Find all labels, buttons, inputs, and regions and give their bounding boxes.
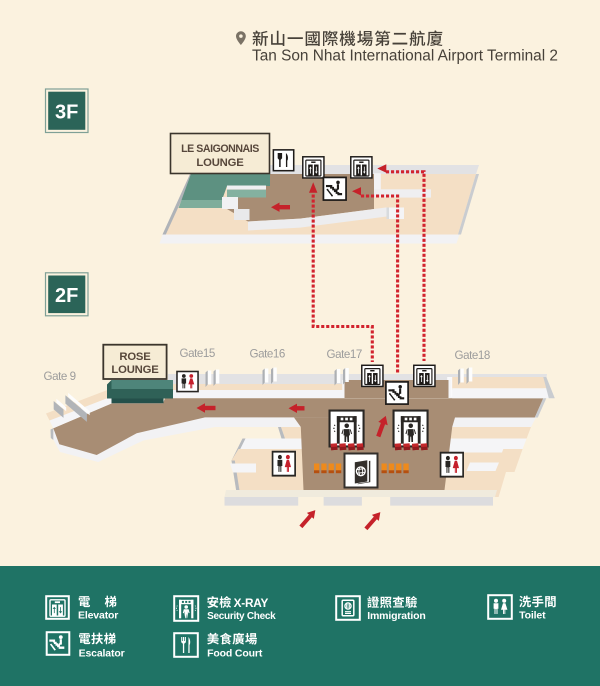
svg-text:Food Court: Food Court [207, 648, 263, 660]
svg-text:X-RAY: X-RAY [234, 596, 269, 610]
svg-text:Gate17: Gate17 [327, 348, 362, 361]
svg-text:LE SAIGONNAIS: LE SAIGONNAIS [181, 143, 259, 155]
svg-text:2F: 2F [55, 285, 78, 307]
svg-text:LOUNGE: LOUNGE [111, 364, 159, 376]
svg-text:Escalator: Escalator [79, 647, 125, 659]
svg-text:Tan Son Nhat International Air: Tan Son Nhat International Airport Termi… [252, 47, 558, 64]
svg-text:3F: 3F [55, 102, 78, 124]
svg-text:Elevator: Elevator [78, 610, 118, 622]
svg-text:ROSE: ROSE [119, 351, 151, 363]
svg-text:Gate18: Gate18 [455, 349, 490, 362]
svg-text:Gate15: Gate15 [180, 347, 215, 360]
svg-text:Immigration: Immigration [367, 610, 425, 622]
svg-text:LOUNGE: LOUNGE [196, 157, 244, 169]
svg-text:Security Check: Security Check [207, 611, 276, 622]
svg-text:Gate16: Gate16 [250, 348, 285, 361]
svg-text:Gate 9: Gate 9 [44, 370, 76, 383]
svg-text:Toilet: Toilet [519, 609, 546, 621]
